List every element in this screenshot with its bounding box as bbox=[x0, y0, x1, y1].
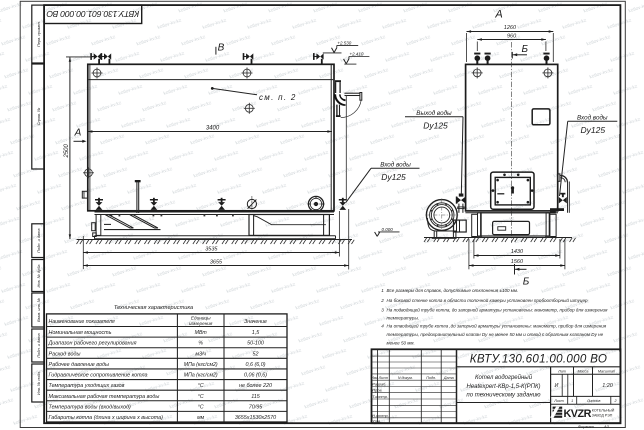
svg-text:Единицы: Единицы bbox=[191, 316, 211, 321]
svg-text:2: 2 bbox=[613, 399, 616, 403]
svg-text:0,6 (6,0): 0,6 (6,0) bbox=[245, 362, 265, 368]
svg-text:Взам. инв. №: Взам. инв. № bbox=[36, 297, 41, 322]
svg-text:°С: °С bbox=[198, 383, 204, 389]
svg-text:А: А bbox=[494, 9, 502, 21]
svg-text:°С: °С bbox=[198, 404, 204, 410]
svg-text:На отводящей трубе котла ,до з: На отводящей трубе котла ,до запорной ар… bbox=[387, 322, 607, 328]
svg-text:Т.контр.: Т.контр. bbox=[372, 394, 388, 399]
svg-text:3535: 3535 bbox=[205, 246, 218, 252]
svg-text:Листов: Листов bbox=[586, 399, 601, 403]
svg-text:Подп.: Подп. bbox=[426, 376, 436, 380]
svg-text:Подп. и дата: Подп. и дата bbox=[36, 332, 41, 357]
svg-text:На подводящей трубе котла, до: На подводящей трубе котла, до запорной а… bbox=[387, 307, 608, 313]
svg-text:Значение: Значение bbox=[244, 319, 267, 325]
svg-text:Лист: Лист bbox=[378, 376, 389, 380]
svg-text:3655: 3655 bbox=[210, 259, 223, 265]
svg-text:измерения: измерения bbox=[189, 321, 213, 326]
svg-text:Масса: Масса bbox=[578, 369, 589, 373]
svg-text:А: А bbox=[74, 127, 82, 138]
svg-text:Котел водогрейный: Котел водогрейный bbox=[475, 374, 533, 381]
svg-text:ЗАВОД РЭП: ЗАВОД РЭП bbox=[592, 413, 613, 417]
svg-text:МПа (кгс/см2): МПа (кгс/см2) bbox=[184, 373, 218, 379]
svg-text:1,5: 1,5 bbox=[252, 330, 260, 336]
svg-text:°С: °С bbox=[198, 394, 204, 400]
svg-text:Дата: Дата bbox=[443, 376, 454, 380]
svg-text:%: % bbox=[198, 341, 203, 347]
svg-text:0.000: 0.000 bbox=[382, 227, 394, 232]
svg-text:1: 1 bbox=[381, 288, 384, 293]
svg-text:МВт: МВт bbox=[195, 330, 208, 336]
svg-text:Инв. № дубл.: Инв. № дубл. bbox=[36, 264, 41, 288]
svg-text:менее 50 мм.: менее 50 мм. bbox=[387, 340, 415, 345]
svg-text:115: 115 bbox=[251, 394, 261, 400]
svg-text:4: 4 bbox=[381, 323, 384, 328]
svg-text:Выход воды: Выход воды bbox=[416, 109, 452, 117]
svg-text:Утв.: Утв. bbox=[372, 418, 381, 423]
svg-text:м3/ч: м3/ч bbox=[195, 351, 206, 357]
svg-text:КВТУ.130.601.00.000 ВО: КВТУ.130.601.00.000 ВО bbox=[46, 9, 139, 19]
svg-text:1560: 1560 bbox=[511, 259, 524, 265]
svg-text:Dy125: Dy125 bbox=[581, 125, 606, 135]
svg-text:1430: 1430 bbox=[511, 249, 524, 255]
svg-text:Расход воды: Расход воды bbox=[49, 351, 81, 357]
svg-text:0,06 (0,6): 0,06 (0,6) bbox=[244, 373, 267, 379]
svg-text:На боковой стенке котла в обла: На боковой стенке котла в области топочн… bbox=[387, 297, 588, 303]
svg-text:Dy125: Dy125 bbox=[423, 120, 448, 130]
svg-text:Heatexpert-КВр-1,5-К(РПК): Heatexpert-КВр-1,5-К(РПК) bbox=[467, 384, 541, 390]
svg-text:Формат: Формат bbox=[578, 424, 595, 429]
svg-text:Изм: Изм bbox=[371, 376, 378, 380]
svg-text:Температура уходящих газов: Температура уходящих газов bbox=[49, 383, 125, 389]
svg-text:1260: 1260 bbox=[504, 25, 517, 31]
svg-text:Справ. №: Справ. № bbox=[36, 107, 41, 125]
svg-text:КОТЕЛЬНЫЙ: КОТЕЛЬНЫЙ bbox=[592, 409, 615, 413]
svg-text:Б: Б bbox=[523, 276, 530, 287]
svg-text:52: 52 bbox=[253, 351, 259, 357]
svg-text:2500: 2500 bbox=[64, 143, 70, 158]
svg-text:KVZR: KVZR bbox=[564, 408, 592, 420]
svg-text:по техническому заданию: по техническому заданию bbox=[466, 392, 541, 398]
svg-text:Рабочее давление воды: Рабочее давление воды bbox=[49, 362, 109, 368]
svg-text:А3: А3 bbox=[603, 424, 610, 429]
svg-text:Наименование показателя: Наименование показателя bbox=[49, 319, 115, 325]
svg-text:В: В bbox=[218, 42, 225, 53]
svg-text:Перв. примен.: Перв. примен. bbox=[36, 21, 41, 47]
svg-text:МПа (кгс/см2): МПа (кгс/см2) bbox=[184, 362, 218, 368]
svg-text:70/95: 70/95 bbox=[249, 404, 263, 410]
svg-text:3: 3 bbox=[381, 308, 384, 313]
svg-text:2: 2 bbox=[380, 298, 384, 303]
svg-text:Габариты котла (длина х ширина: Габариты котла (длина х ширина х высота) bbox=[49, 415, 164, 421]
svg-text:Н.контр.: Н.контр. bbox=[372, 413, 388, 418]
svg-text:Разраб.: Разраб. bbox=[372, 382, 386, 387]
svg-text:Максимальная рабочая температу: Максимальная рабочая температура воды bbox=[49, 394, 160, 400]
svg-text:КВТУ.130.601.00.000 ВО: КВТУ.130.601.00.000 ВО bbox=[470, 352, 608, 365]
svg-text:960: 960 bbox=[507, 33, 517, 39]
svg-text:+2.530: +2.530 bbox=[337, 40, 351, 45]
svg-text:см. п. 2: см. п. 2 bbox=[259, 93, 297, 102]
svg-text:1: 1 bbox=[571, 399, 573, 403]
svg-text:Лит: Лит bbox=[557, 369, 566, 373]
svg-text:Вход воды: Вход воды bbox=[577, 113, 608, 121]
svg-text:не более 220: не более 220 bbox=[239, 383, 272, 389]
svg-text:Температура воды (вход/выход): Температура воды (вход/выход) bbox=[49, 404, 132, 410]
svg-text:Инв. № подл.: Инв. № подл. bbox=[36, 371, 41, 395]
svg-text:Б: Б bbox=[522, 44, 529, 55]
svg-text:3400: 3400 bbox=[206, 126, 220, 132]
svg-text:температуры, предохранительный: температуры, предохранительный клапан Dy… bbox=[387, 331, 604, 337]
svg-text:Подп. и дата: Подп. и дата bbox=[36, 228, 41, 253]
svg-text:1:20: 1:20 bbox=[602, 383, 613, 389]
svg-text:мм: мм bbox=[197, 415, 205, 421]
svg-text:Гидравлическое сопротивление к: Гидравлическое сопротивление котла bbox=[49, 373, 148, 379]
svg-text:+2.410: +2.410 bbox=[350, 52, 364, 57]
svg-text:Лист: Лист bbox=[553, 399, 564, 403]
svg-text:Диапазон рабочего регулировани: Диапазон рабочего регулирования bbox=[48, 341, 137, 347]
svg-text:И: И bbox=[554, 383, 558, 389]
svg-text:Номинальная мощность: Номинальная мощность bbox=[49, 330, 112, 336]
svg-text:50-100: 50-100 bbox=[247, 341, 264, 347]
svg-text:Пров.: Пров. bbox=[372, 388, 382, 393]
svg-text:Вход воды: Вход воды bbox=[380, 160, 411, 168]
svg-text:Dy125: Dy125 bbox=[381, 172, 406, 182]
svg-text:температуры.: температуры. bbox=[387, 316, 420, 321]
svg-text:Техническая характеристика: Техническая характеристика bbox=[114, 305, 193, 311]
svg-text:Масштаб: Масштаб bbox=[598, 369, 616, 373]
svg-text:N докум.: N докум. bbox=[398, 376, 413, 380]
svg-text:Все размеры для справок, допус: Все размеры для справок, допустимые откл… bbox=[387, 288, 519, 293]
svg-text:3655х1530х2570: 3655х1530х2570 bbox=[235, 415, 276, 421]
